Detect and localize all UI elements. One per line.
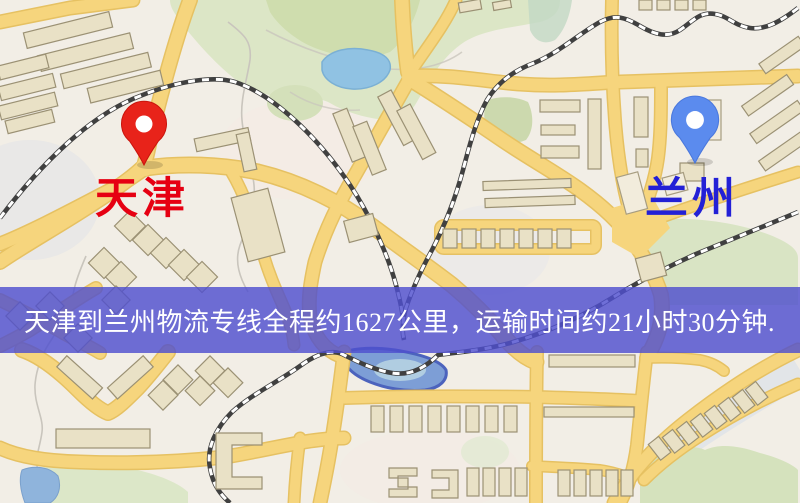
destination-pin-icon [663, 94, 727, 166]
route-info-text: 天津到兰州物流专线全程约1627公里，运输时间约21小时30分钟. [0, 302, 775, 339]
map-canvas [0, 0, 800, 503]
map-screenshot: 天津 兰州 天津到兰州物流专线全程约1627公里，运输时间约21小时30分钟. [0, 0, 800, 503]
origin-pin-icon [114, 98, 174, 168]
route-info-banner: 天津到兰州物流专线全程约1627公里，运输时间约21小时30分钟. [0, 287, 800, 353]
destination-city-label: 兰州 [645, 178, 739, 221]
origin-city-label: 天津 [95, 178, 189, 221]
